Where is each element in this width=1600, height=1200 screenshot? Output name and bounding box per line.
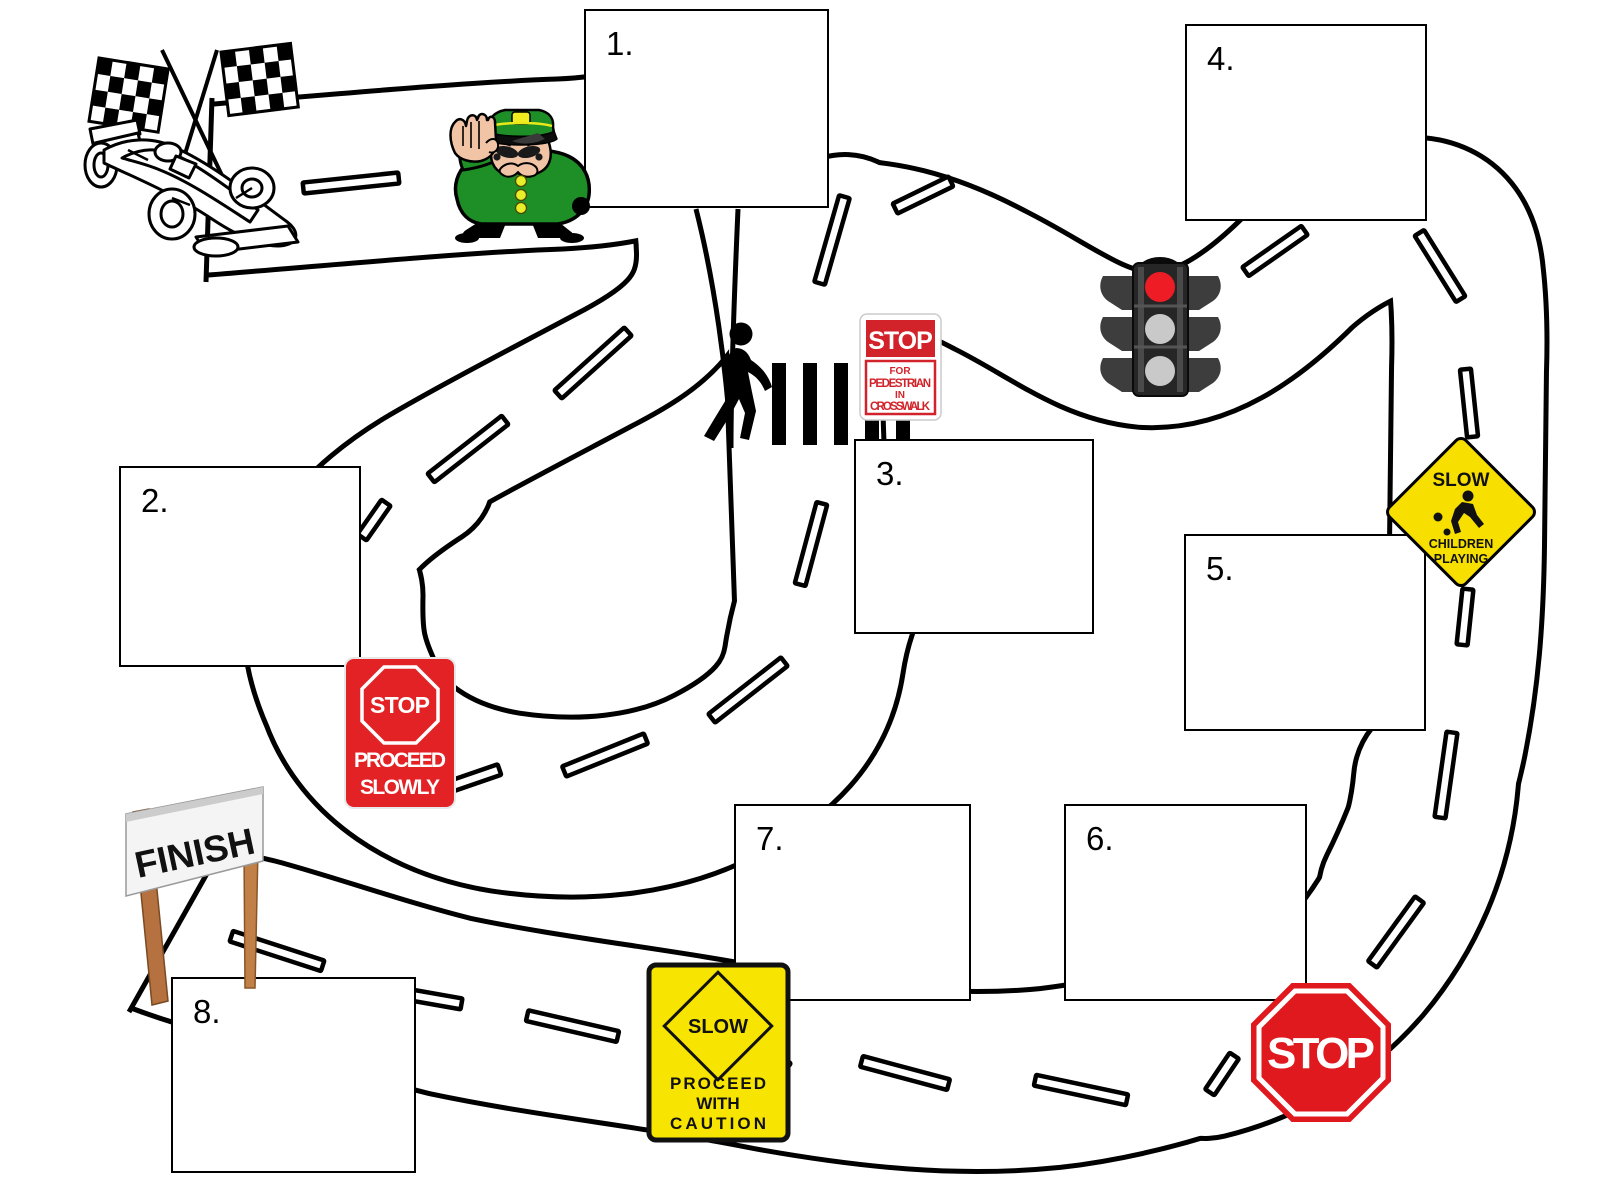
svg-text:8.: 8. — [193, 993, 221, 1030]
svg-text:STOP: STOP — [370, 692, 430, 718]
svg-text:PEDESTRIAN: PEDESTRIAN — [869, 378, 931, 390]
svg-text:SLOWLY: SLOWLY — [360, 776, 440, 799]
svg-text:5.: 5. — [1206, 550, 1234, 587]
svg-text:WITH: WITH — [696, 1094, 739, 1113]
svg-text:3.: 3. — [876, 455, 904, 492]
svg-text:SLOW: SLOW — [1433, 470, 1490, 491]
svg-text:CHILDREN: CHILDREN — [1429, 537, 1494, 551]
svg-text:SLOW: SLOW — [688, 1016, 748, 1038]
svg-text:FOR: FOR — [889, 366, 911, 377]
svg-text:PROCEED: PROCEED — [354, 749, 446, 772]
svg-text:7.: 7. — [756, 820, 784, 857]
svg-text:2.: 2. — [141, 482, 169, 519]
svg-text:4.: 4. — [1207, 40, 1235, 77]
svg-text:6.: 6. — [1086, 820, 1114, 857]
svg-text:IN: IN — [895, 390, 905, 401]
svg-text:STOP: STOP — [1267, 1029, 1375, 1078]
svg-text:1.: 1. — [606, 25, 634, 62]
svg-text:PROCEED: PROCEED — [670, 1074, 766, 1093]
svg-text:STOP: STOP — [868, 327, 932, 355]
svg-text:CROSSWALK: CROSSWALK — [870, 401, 931, 413]
svg-text:PLAYING: PLAYING — [1434, 552, 1488, 566]
